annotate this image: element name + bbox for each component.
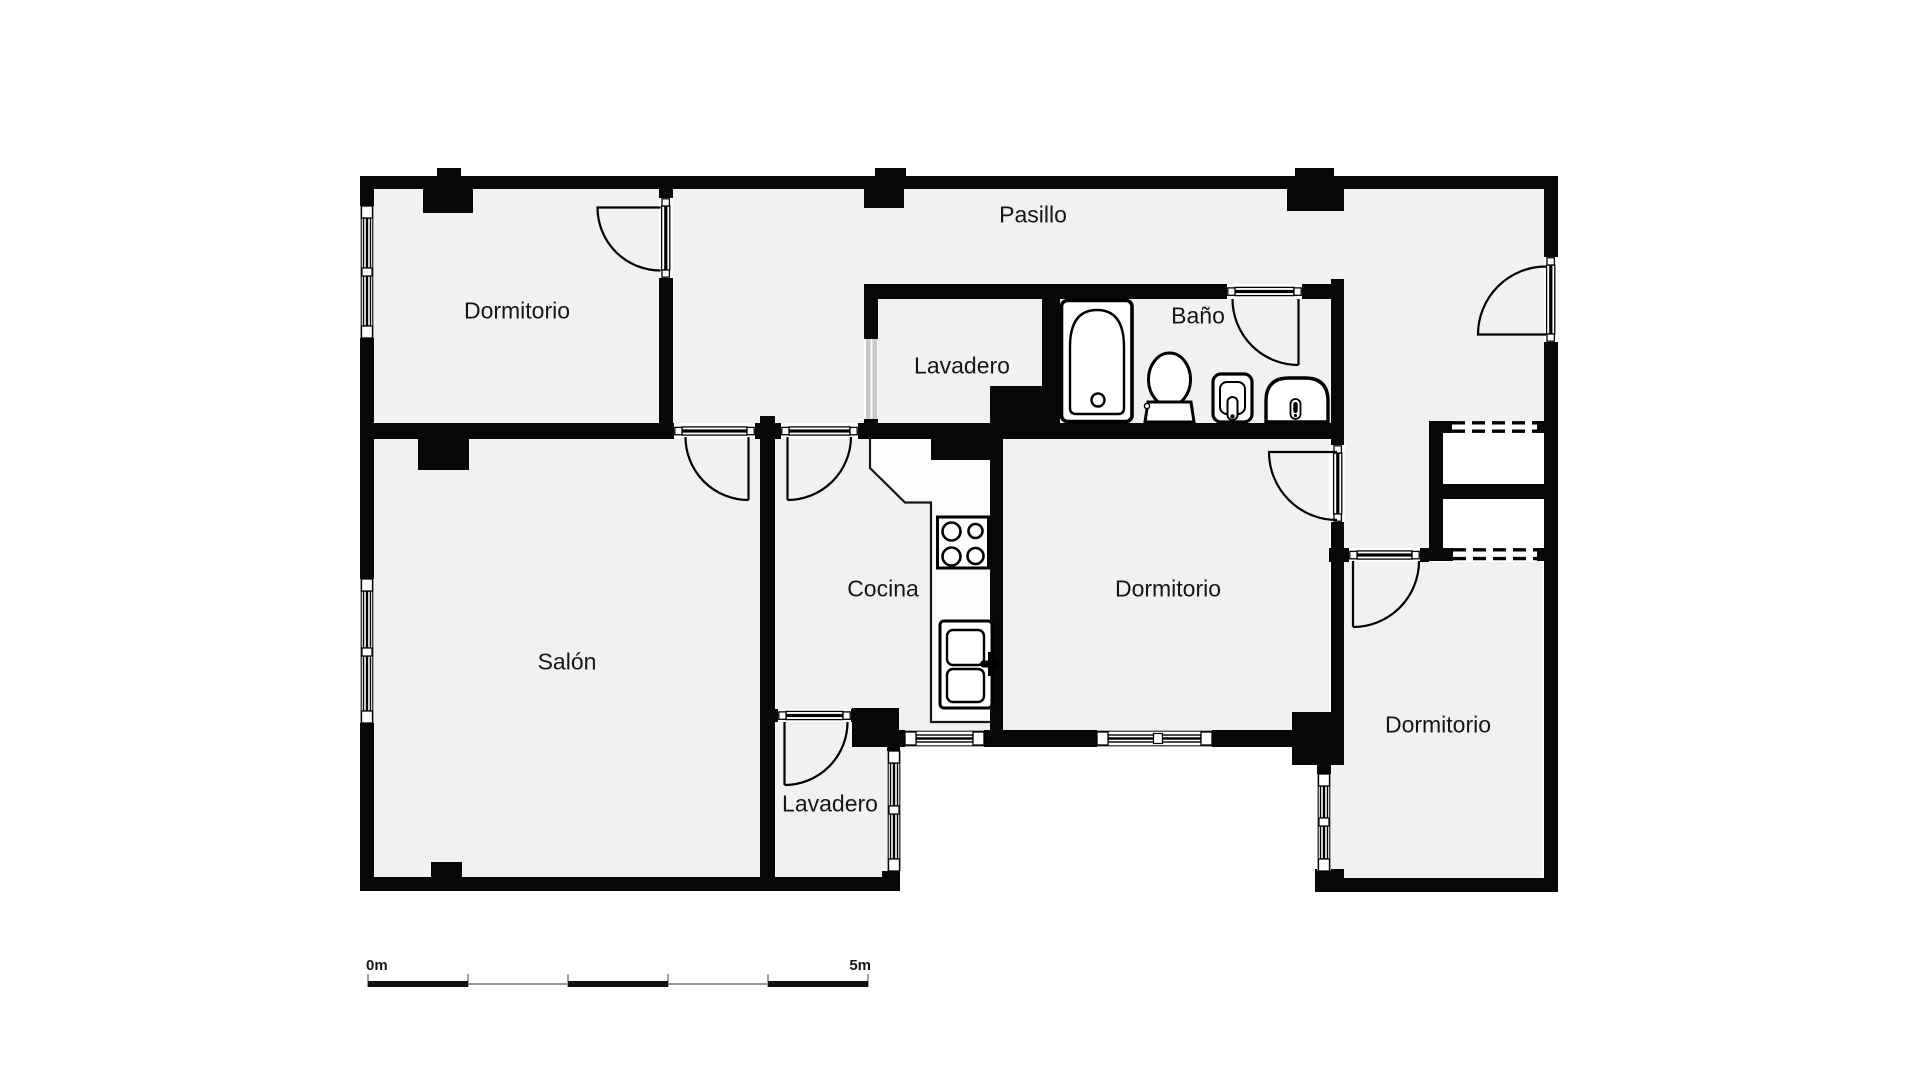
- svg-text:Pasillo: Pasillo: [999, 202, 1067, 228]
- svg-text:Dormitorio: Dormitorio: [1385, 712, 1491, 738]
- svg-text:Lavadero: Lavadero: [782, 791, 878, 817]
- svg-text:Baño: Baño: [1171, 303, 1225, 329]
- svg-text:Cocina: Cocina: [847, 576, 919, 602]
- svg-text:0m: 0m: [366, 957, 388, 974]
- svg-text:Salón: Salón: [538, 649, 597, 675]
- svg-text:Dormitorio: Dormitorio: [464, 298, 570, 324]
- svg-text:5m: 5m: [849, 957, 871, 974]
- svg-text:Dormitorio: Dormitorio: [1115, 576, 1221, 602]
- svg-text:Lavadero: Lavadero: [914, 353, 1010, 379]
